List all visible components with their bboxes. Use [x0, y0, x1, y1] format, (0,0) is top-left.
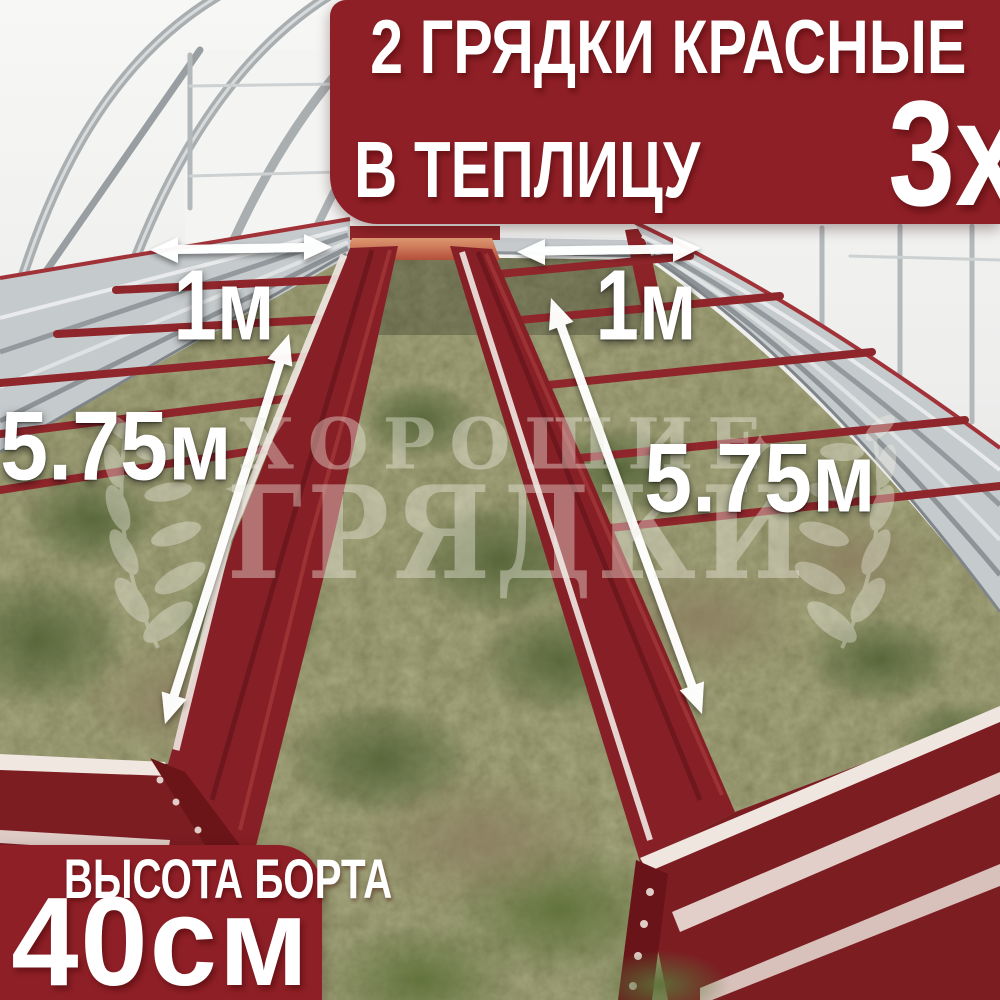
greenhouse-size-value: 3х6м	[816, 95, 1000, 212]
board-height-banner: ВЫСОТА БОРТА 40см	[0, 845, 322, 1000]
offer-subtitle: В ТЕПЛИЦУ	[354, 138, 816, 202]
width-label-left: 1м	[159, 249, 289, 364]
width-label-right: 1м	[581, 249, 711, 364]
offer-title: 2 ГРЯДКИ КРАСНЫЕ	[202, 14, 966, 82]
length-label-right: 5.75м	[628, 422, 891, 535]
offer-subtitle-row: В ТЕПЛИЦУ 3х6м	[354, 95, 970, 212]
length-label-left: 5.75м	[0, 390, 248, 503]
board-height-value: 40см	[0, 884, 322, 1000]
product-card: ХОРОШИЕ ГРЯДКИ 1м 1м 5.75м 5.75м 2 ГРЯДК…	[0, 0, 1000, 1000]
top-offer-banner: 2 ГРЯДКИ КРАСНЫЕ В ТЕПЛИЦУ 3х6м	[330, 0, 1000, 224]
